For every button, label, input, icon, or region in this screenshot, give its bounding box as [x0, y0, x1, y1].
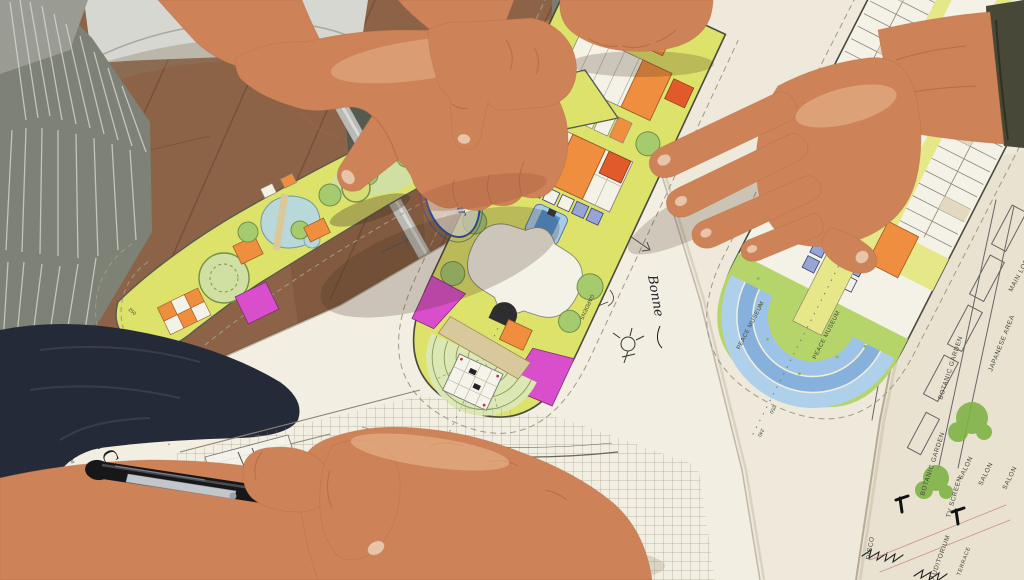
- resting-hand-right: [649, 0, 1024, 273]
- fist-hand-top: [560, 0, 713, 51]
- photo-canvas: MAIN LOBBY JAPANESE AREA BOTANIC GARDEN …: [0, 0, 1024, 580]
- writing-hand: [0, 426, 652, 580]
- fist: [560, 0, 713, 51]
- foreground-scene: [0, 0, 1024, 580]
